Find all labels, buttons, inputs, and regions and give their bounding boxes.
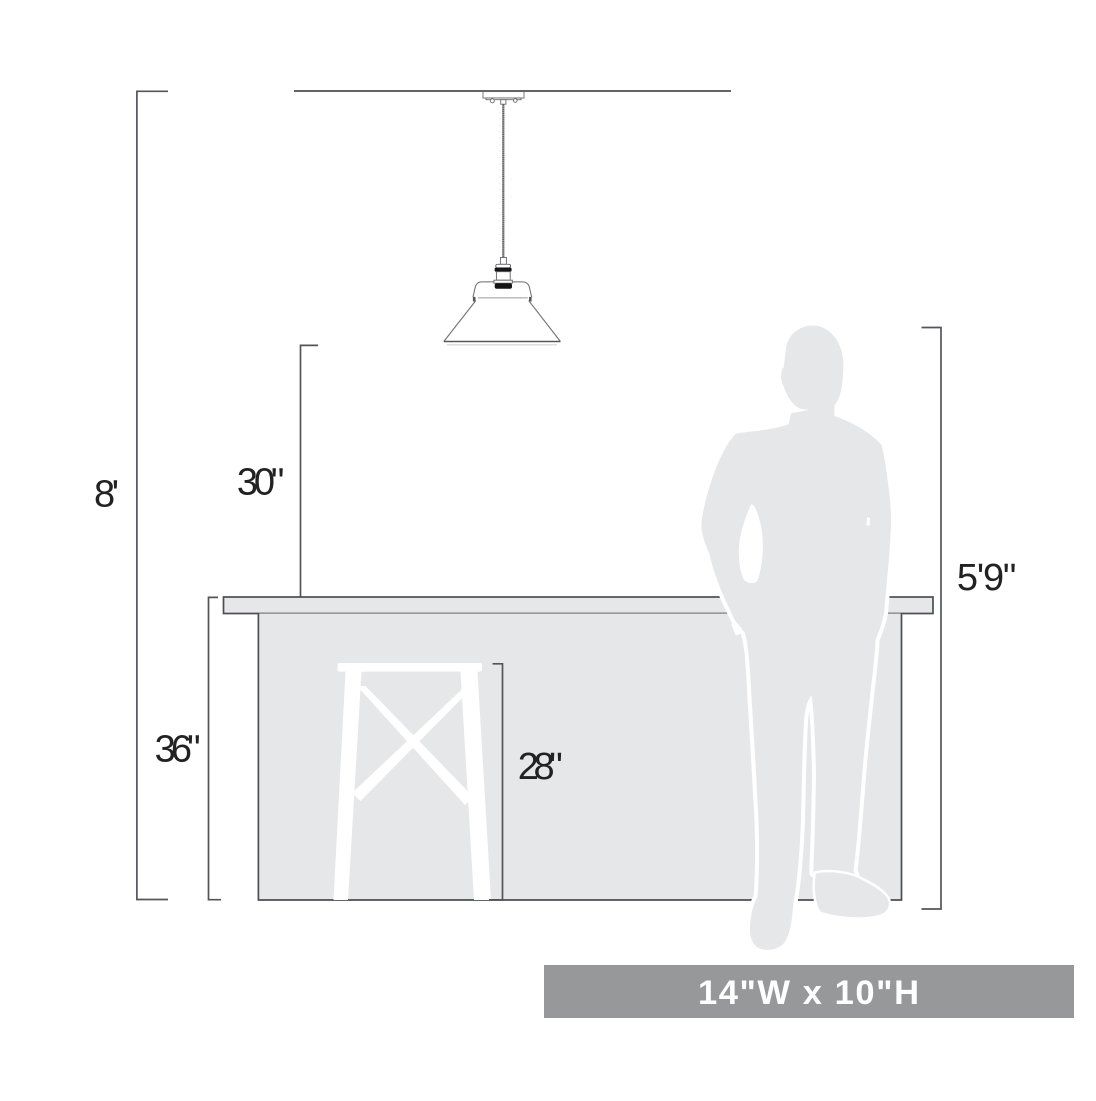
svg-text:5'9": 5'9" bbox=[957, 557, 1017, 599]
svg-text:36": 36" bbox=[155, 729, 201, 771]
svg-text:30": 30" bbox=[237, 462, 285, 504]
svg-text:28": 28" bbox=[518, 746, 563, 788]
svg-text:8': 8' bbox=[94, 474, 119, 516]
svg-text:14"W x 10"H: 14"W x 10"H bbox=[698, 974, 919, 1012]
